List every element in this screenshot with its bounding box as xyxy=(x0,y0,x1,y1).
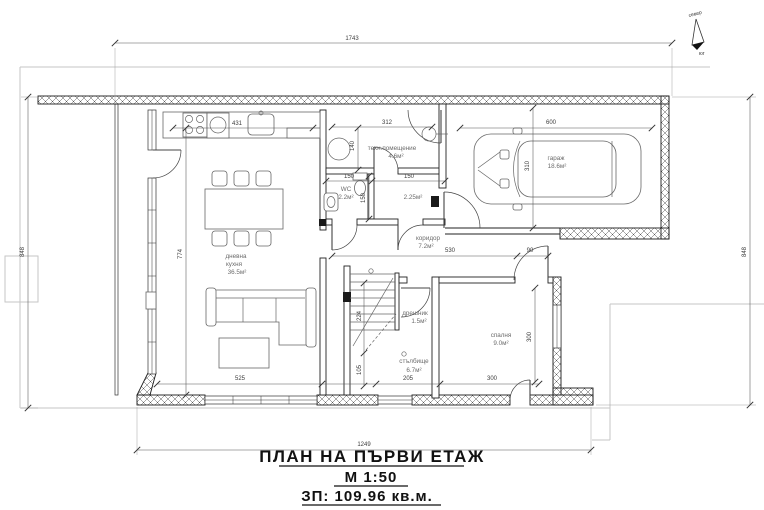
room-label-wardrobe: дрешник xyxy=(402,310,428,317)
garage-door xyxy=(444,192,480,228)
compass: север юг xyxy=(688,10,705,57)
compass-south-label: юг xyxy=(699,51,705,57)
title-block: ПЛАН НА ПЪРВИ ЕТАЖ М 1:50 ЗП: 109.96 кв.… xyxy=(259,447,485,505)
floor-plan-page: 1743 848 848 1249 431 312 140 600 310 xyxy=(0,0,764,510)
room-area-bedroom: 9.0м² xyxy=(493,340,508,347)
room-label-tech: техн.помещение xyxy=(368,145,417,152)
dim-tech-height: 140 xyxy=(350,140,356,151)
dim-door-width: 90 xyxy=(527,248,534,254)
car-mirror xyxy=(513,204,522,210)
room-area-garage: 18.6м² xyxy=(548,163,567,170)
plan-scale: М 1:50 xyxy=(345,469,398,486)
dim-garage-width: 600 xyxy=(546,120,557,126)
dim-bedroom-width: 300 xyxy=(487,376,498,382)
dim-overall-right: 848 xyxy=(742,246,748,257)
coffee-table xyxy=(219,338,269,368)
bedroom-exterior-door xyxy=(510,380,530,400)
dining-set xyxy=(205,171,283,246)
room-label-stairs: стълбище xyxy=(399,357,429,365)
room-label-garage: гараж xyxy=(548,155,566,162)
room-area-stairs: 6.7м² xyxy=(406,367,421,374)
compass-north-label: север xyxy=(688,10,703,19)
room-label-bedroom: спалня xyxy=(491,332,512,339)
room-label-living-1: дневна xyxy=(226,253,247,260)
entry-door xyxy=(408,110,441,143)
room-label-living-2: кухня xyxy=(226,261,242,268)
radiator xyxy=(146,292,156,309)
dim-corridor-length: 530 xyxy=(445,248,456,254)
dim-stairs-depth: 224 xyxy=(357,310,363,321)
dim-stairs-lower: 105 xyxy=(357,364,363,375)
room-area-wc: 2.2м² xyxy=(338,194,353,201)
dim-storage-width: 150 xyxy=(404,174,415,180)
dim-kitchen-counter: 431 xyxy=(232,121,243,127)
dim-wc-depth: 150 xyxy=(361,192,367,203)
room-area-wardrobe: 1.5м² xyxy=(411,318,426,325)
washbasin xyxy=(324,193,338,211)
dim-garage-depth: 310 xyxy=(525,160,531,171)
dim-wc-width: 150 xyxy=(344,174,355,180)
boiler xyxy=(328,138,350,160)
gate-marker xyxy=(5,256,38,302)
room-area-tech: 4.6м² xyxy=(388,153,403,160)
kitchen-sink xyxy=(248,114,274,135)
car-cabin xyxy=(518,141,616,197)
dim-living-width: 525 xyxy=(235,376,246,382)
entry-lamp xyxy=(422,127,436,141)
dim-overall-left: 848 xyxy=(20,246,26,257)
dim-bedroom-depth: 300 xyxy=(527,331,533,342)
porch-door xyxy=(153,150,181,178)
room-area-living: 36.5м² xyxy=(228,269,247,276)
room-label-corridor: коридор xyxy=(416,235,441,242)
dim-living-depth: 774 xyxy=(178,248,184,259)
north-arrow-icon xyxy=(692,19,704,45)
plan-area: ЗП: 109.96 кв.м. xyxy=(301,488,433,505)
room-area-storage: 2.25м² xyxy=(404,194,423,201)
floor-plan-svg: 1743 848 848 1249 431 312 140 600 310 xyxy=(0,0,764,510)
wc-door xyxy=(332,225,357,250)
room-area-corridor: 7.2м² xyxy=(418,243,433,250)
porch-edge xyxy=(115,104,118,395)
dining-table xyxy=(205,189,283,229)
dim-tech-width: 312 xyxy=(382,120,393,126)
room-label-wc: WC xyxy=(341,186,352,193)
dim-overall-top: 1743 xyxy=(345,36,359,42)
toilet xyxy=(353,173,367,196)
dim-stairs-width: 205 xyxy=(403,376,414,382)
car-mirror xyxy=(513,128,522,134)
plan-title: ПЛАН НА ПЪРВИ ЕТАЖ xyxy=(259,447,485,466)
